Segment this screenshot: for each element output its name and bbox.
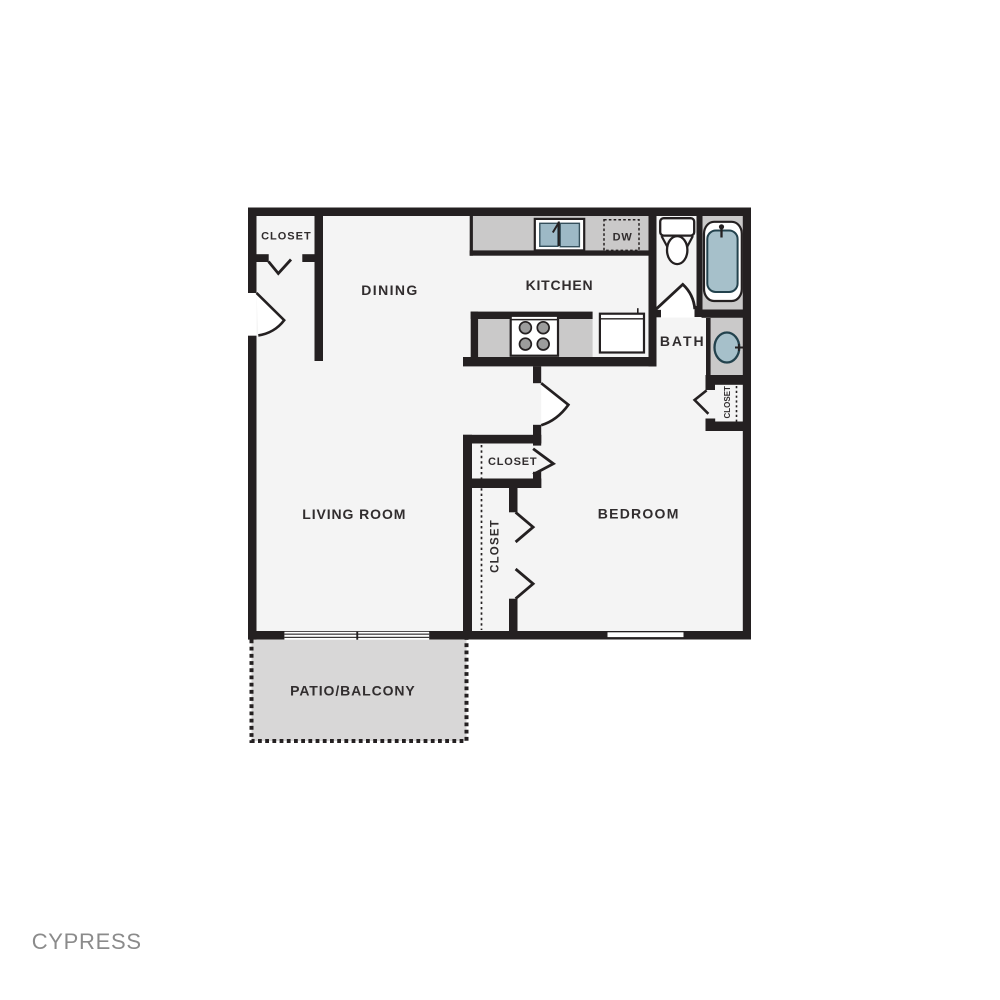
svg-text:BATH: BATH	[660, 333, 706, 349]
svg-text:BEDROOM: BEDROOM	[598, 506, 680, 522]
svg-text:CLOSET: CLOSET	[261, 230, 312, 242]
svg-text:PATIO/BALCONY: PATIO/BALCONY	[290, 683, 416, 699]
svg-text:DINING: DINING	[361, 282, 418, 298]
svg-text:DW: DW	[613, 231, 633, 243]
svg-text:CLOSET: CLOSET	[488, 456, 537, 468]
svg-text:LIVING ROOM: LIVING ROOM	[302, 506, 406, 522]
svg-text:CLOSET: CLOSET	[723, 386, 732, 419]
svg-text:CYPRESS: CYPRESS	[32, 929, 142, 954]
svg-text:CLOSET: CLOSET	[489, 519, 501, 573]
svg-text:KITCHEN: KITCHEN	[526, 277, 594, 293]
